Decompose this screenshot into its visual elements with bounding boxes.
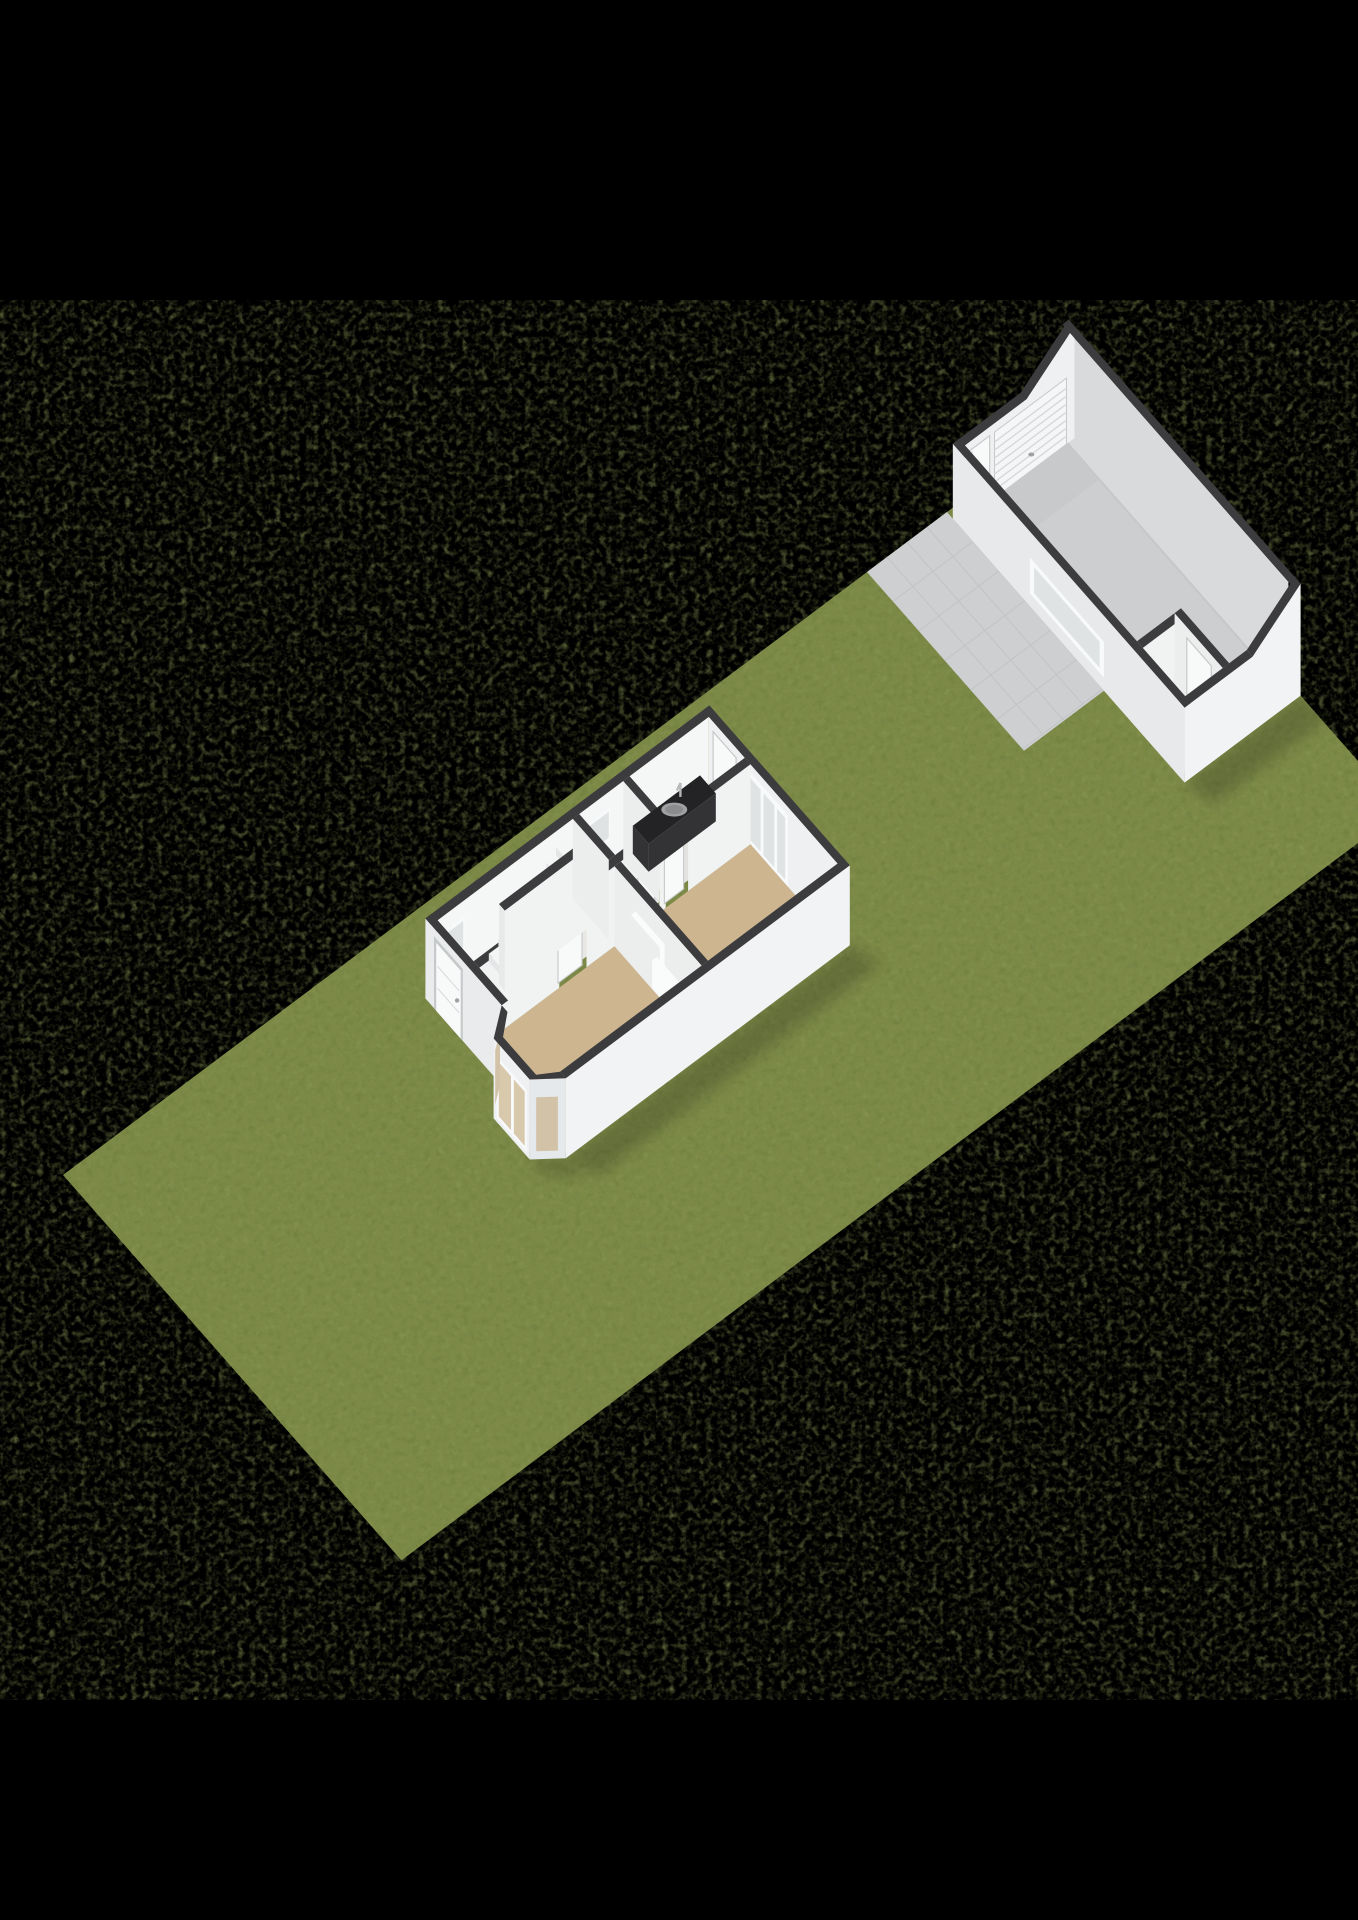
kitchen-sink-basin xyxy=(665,805,683,814)
radiator-back-room xyxy=(660,944,665,976)
bay-side-glass xyxy=(536,1097,558,1152)
scene-canvas xyxy=(0,0,1358,1920)
stair-wall-end xyxy=(499,904,505,991)
garage-door-handle xyxy=(1028,453,1034,457)
garden-window-glass xyxy=(764,793,775,867)
front-door-handle xyxy=(455,998,459,1002)
garden-window-glass xyxy=(777,809,785,880)
floorplan-3d-view[interactable] xyxy=(0,0,1358,1920)
